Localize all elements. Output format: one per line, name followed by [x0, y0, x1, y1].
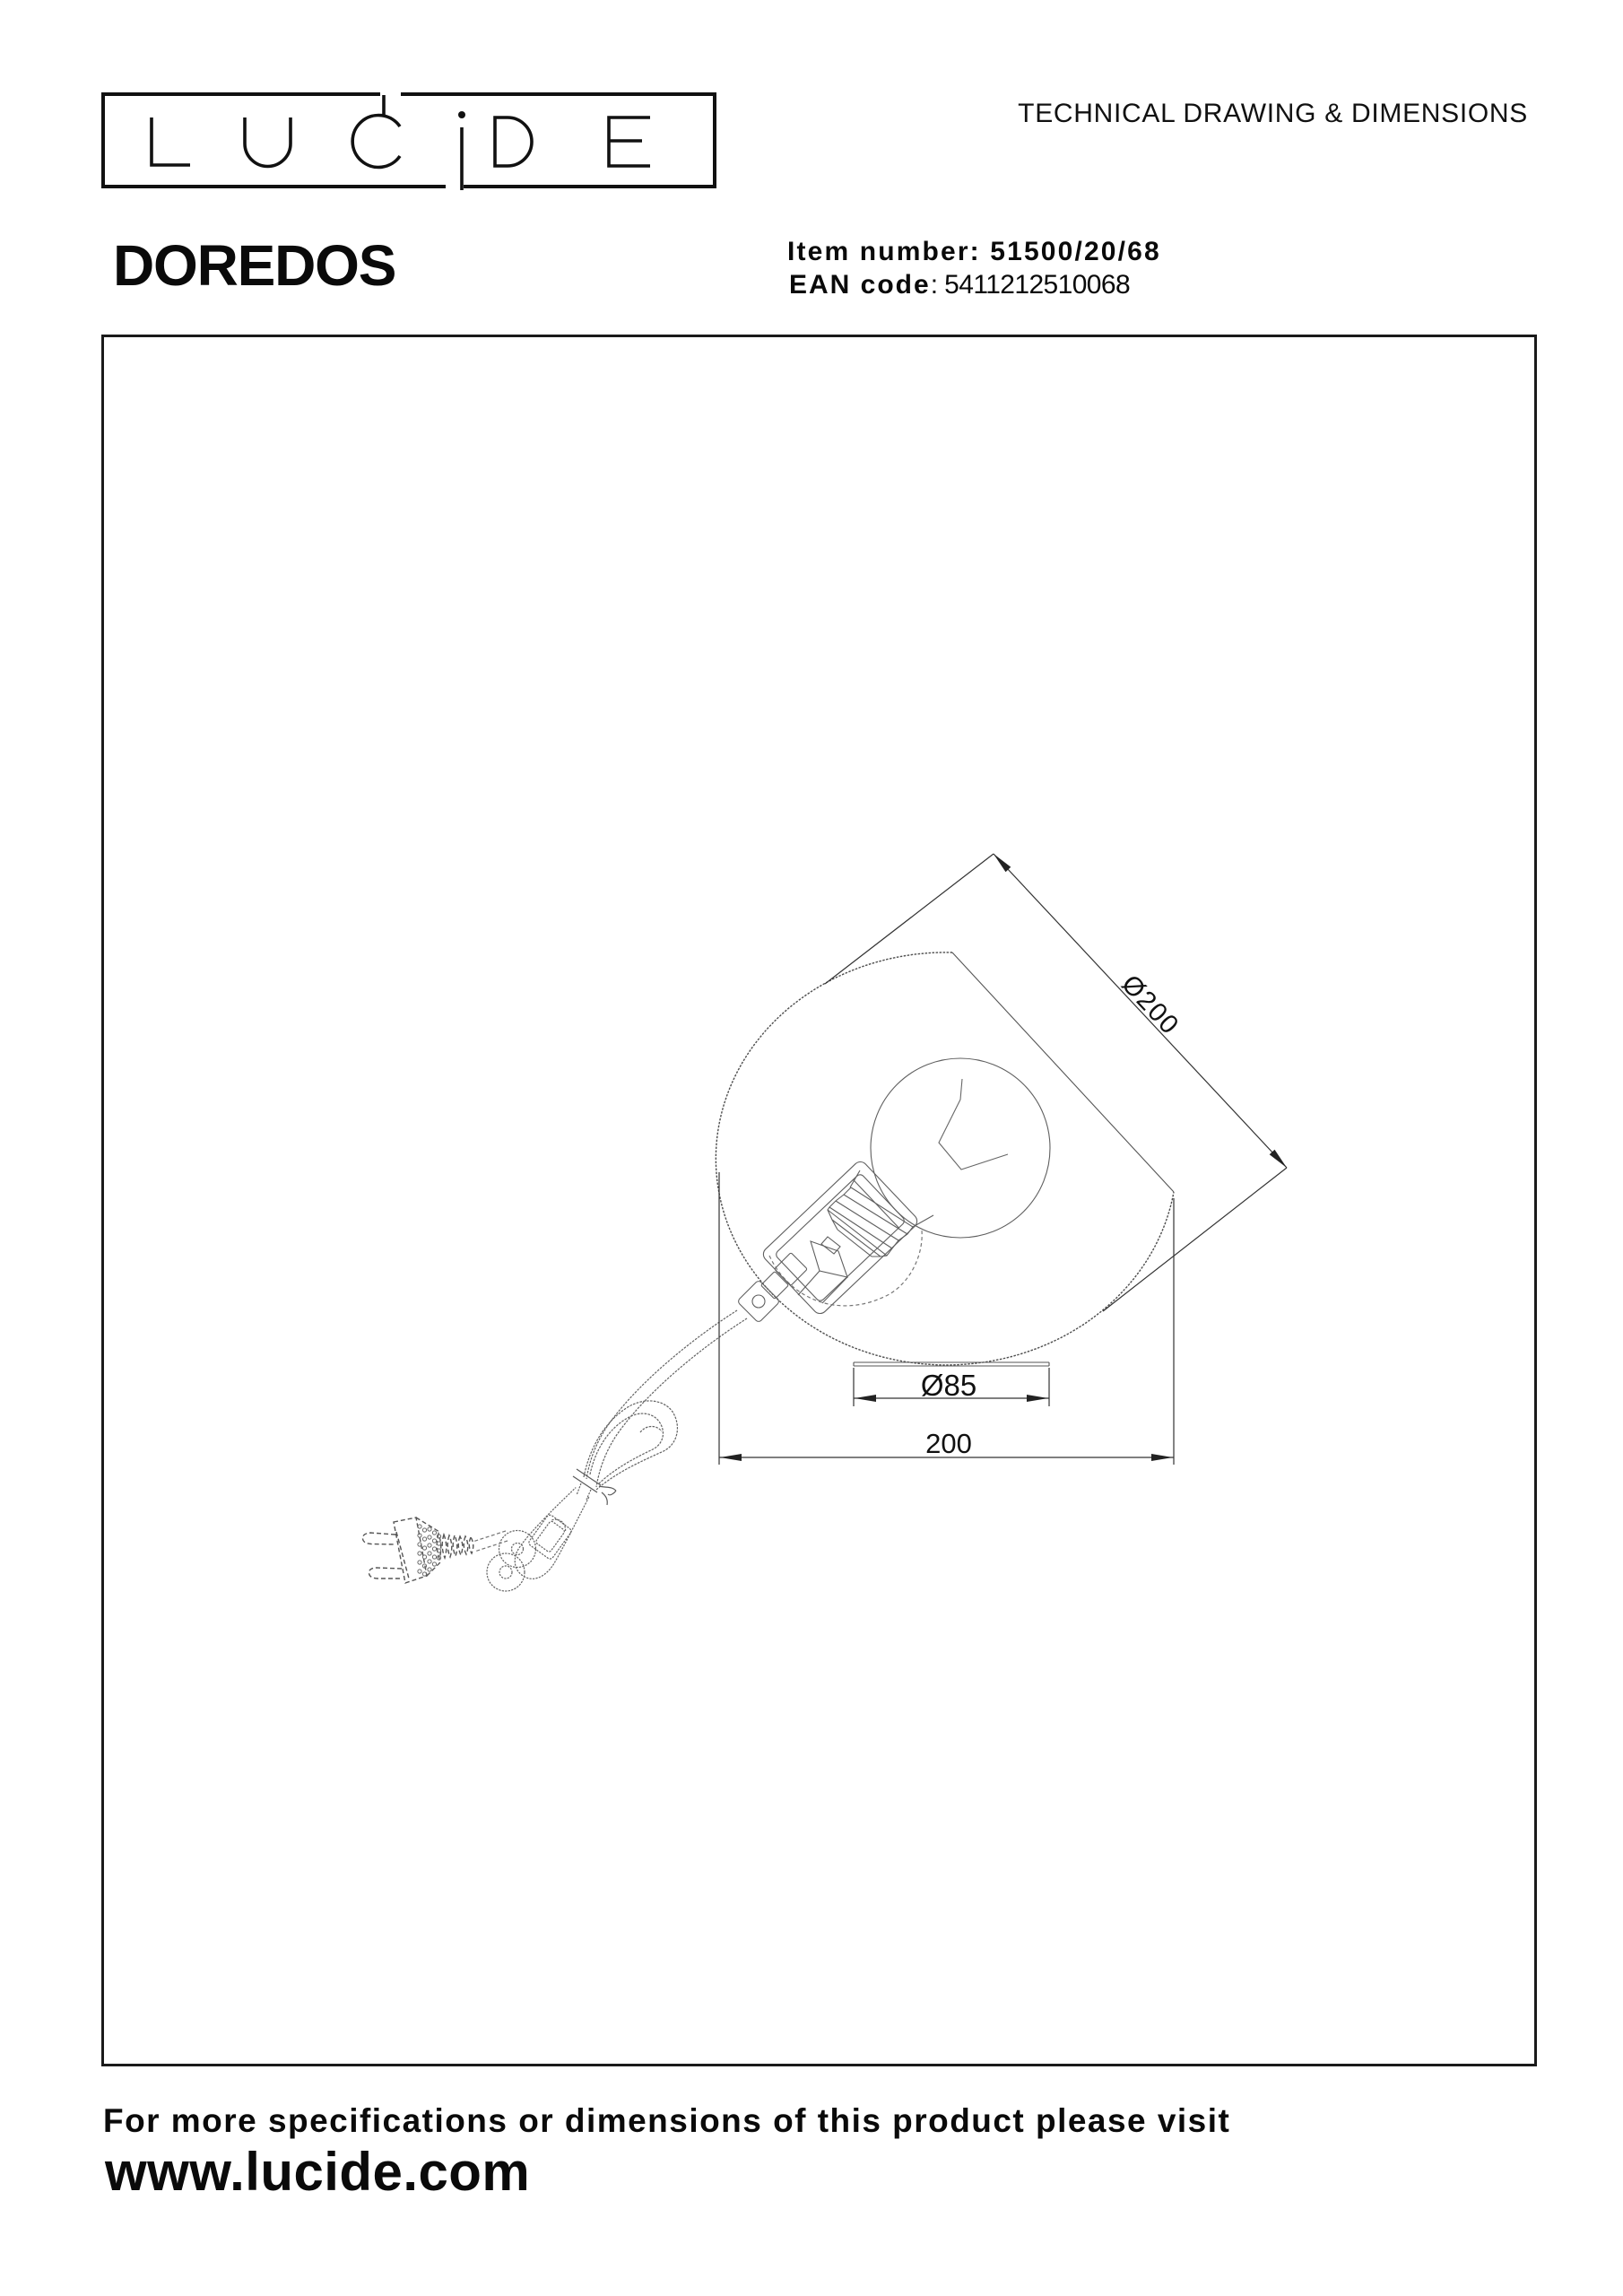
svg-text:Ø85: Ø85: [921, 1369, 976, 1402]
svg-text:200: 200: [925, 1428, 972, 1459]
svg-text:Ø200: Ø200: [1115, 970, 1185, 1041]
